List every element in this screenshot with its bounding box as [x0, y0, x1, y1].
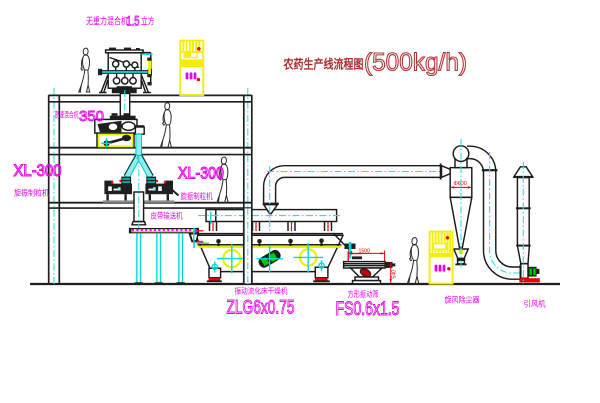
svg-text:高速混合机: 高速混合机 [55, 110, 79, 120]
svg-text:350: 350 [79, 108, 104, 125]
svg-text:540: 540 [392, 270, 398, 279]
svg-text:ZLG6x0.75: ZLG6x0.75 [227, 297, 295, 319]
svg-text:引风机: 引风机 [524, 299, 546, 309]
svg-text:农药生产线流程图: 农药生产线流程图 [283, 57, 364, 72]
svg-text:1500: 1500 [359, 249, 371, 255]
svg-text:FS0.6x1.5: FS0.6x1.5 [336, 298, 400, 320]
svg-text:皮带输送机: 皮带输送机 [151, 211, 183, 221]
svg-text:(500kg/h): (500kg/h) [364, 49, 467, 77]
svg-text:旋振制粒机: 旋振制粒机 [14, 188, 49, 198]
svg-text:XL-300: XL-300 [178, 165, 224, 183]
svg-text:旋振制粒机: 旋振制粒机 [181, 191, 213, 201]
svg-text:立方: 立方 [141, 16, 155, 28]
svg-text:振动流化床干燥机: 振动流化床干燥机 [235, 286, 288, 296]
svg-text:XL-300: XL-300 [14, 162, 62, 180]
svg-text:无重力混合机: 无重力混合机 [86, 16, 128, 28]
svg-text:Φ600: Φ600 [454, 181, 467, 187]
svg-text:旋风除尘器: 旋风除尘器 [445, 295, 480, 305]
svg-text:1.5: 1.5 [127, 14, 140, 29]
